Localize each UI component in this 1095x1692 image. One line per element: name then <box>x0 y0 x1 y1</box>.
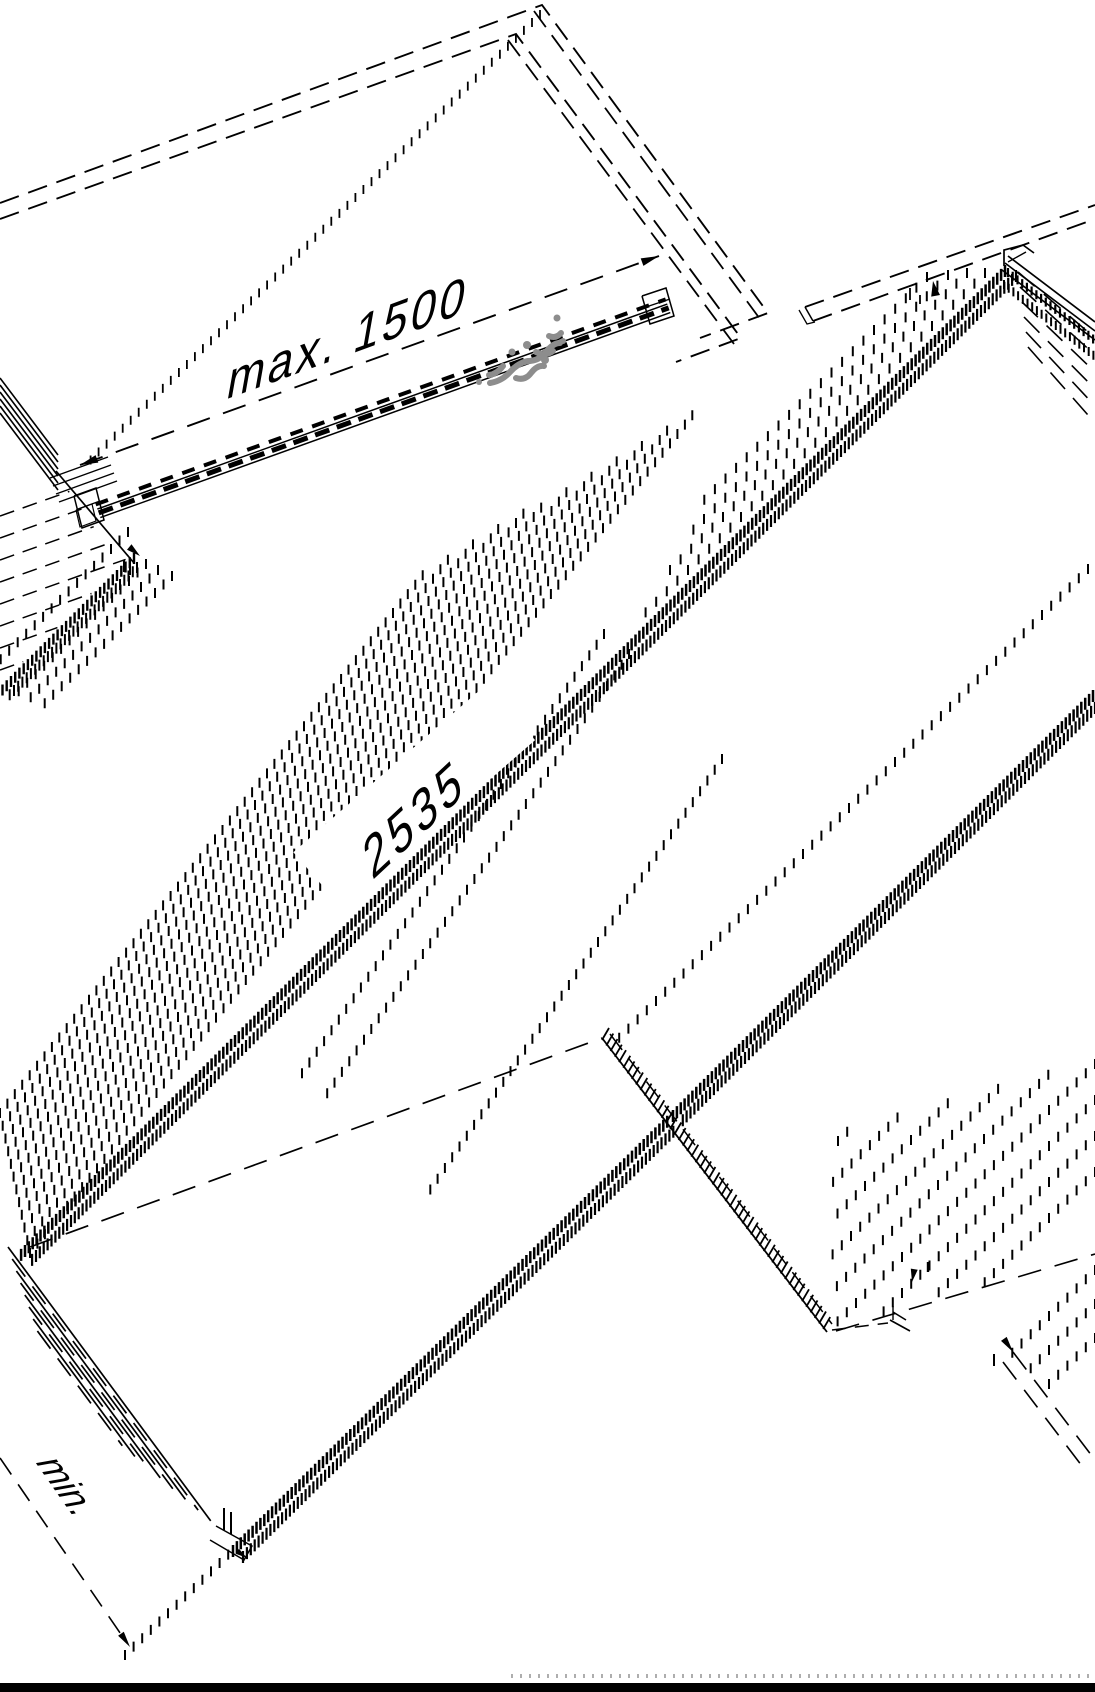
svg-text:min.: min. <box>25 1455 107 1518</box>
